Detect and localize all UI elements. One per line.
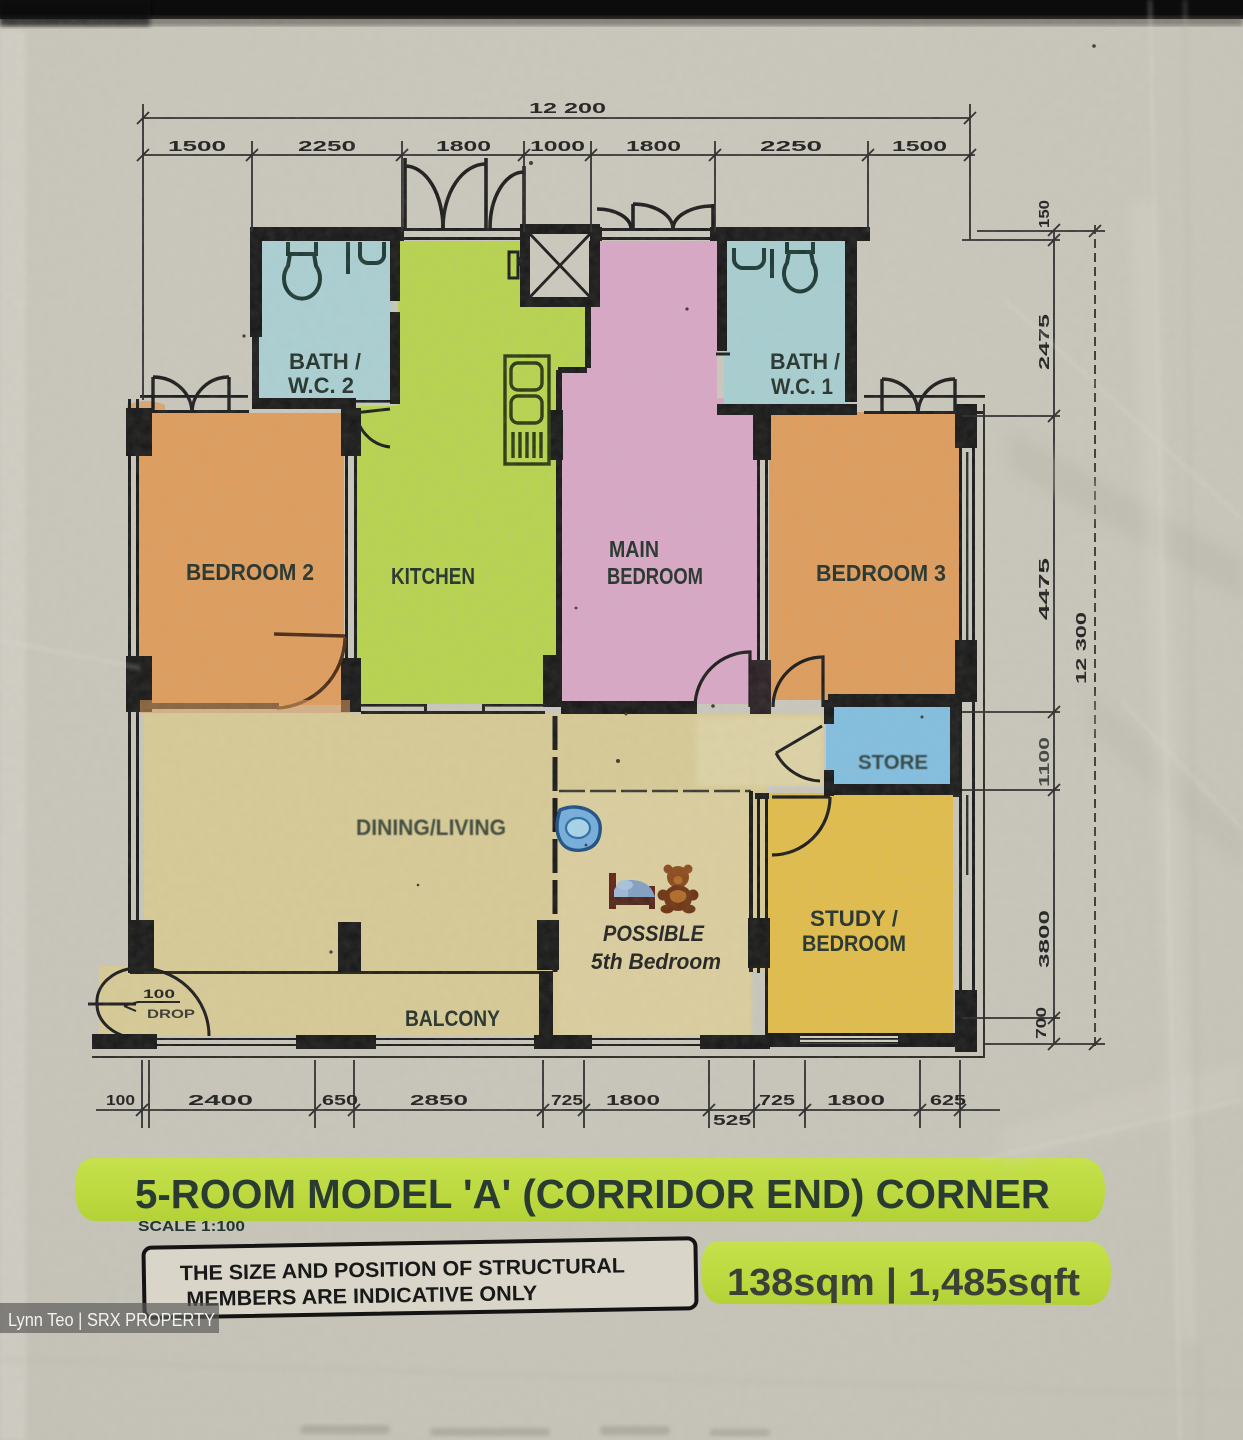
svg-text:5-ROOM MODEL 'A' (CORRIDOR E: 5-ROOM MODEL 'A' (CORRIDOR END) CORNER (135, 1171, 1050, 1217)
svg-text:Lynn Teo | SRX PROPERTY: Lynn Teo | SRX PROPERTY (8, 1310, 215, 1330)
svg-text:138sqm | 1,485sqft: 138sqm | 1,485sqft (727, 1262, 1080, 1304)
svg-text:SCALE 1:100: SCALE 1:100 (138, 1218, 245, 1235)
